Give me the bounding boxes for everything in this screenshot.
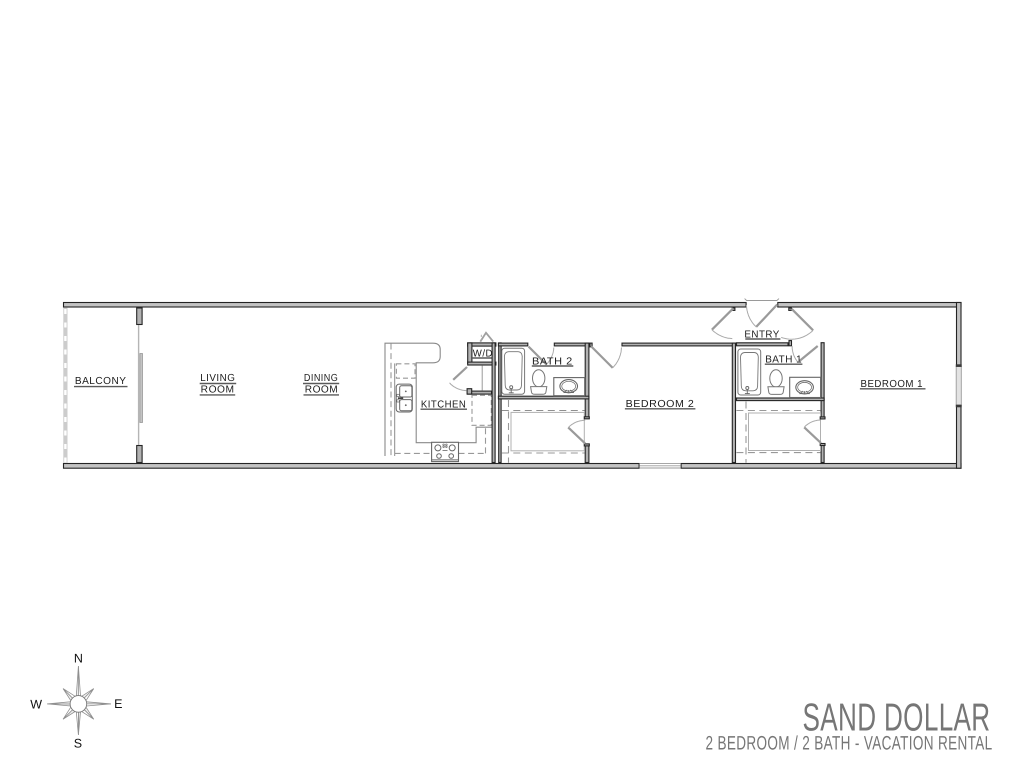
- svg-text:E: E: [114, 697, 123, 711]
- svg-text:BALCONY: BALCONY: [75, 376, 127, 387]
- svg-text:W: W: [30, 697, 42, 711]
- svg-text:ROOM: ROOM: [201, 385, 235, 396]
- svg-text:ROOM: ROOM: [305, 385, 338, 396]
- svg-text:DINING: DINING: [304, 373, 338, 384]
- svg-text:S: S: [74, 737, 83, 751]
- svg-text:LIVING: LIVING: [200, 373, 235, 384]
- svg-text:2 BEDROOM / 2 BATH - VACATION: 2 BEDROOM / 2 BATH - VACATION RENTAL: [706, 732, 993, 754]
- svg-text:N: N: [74, 652, 84, 666]
